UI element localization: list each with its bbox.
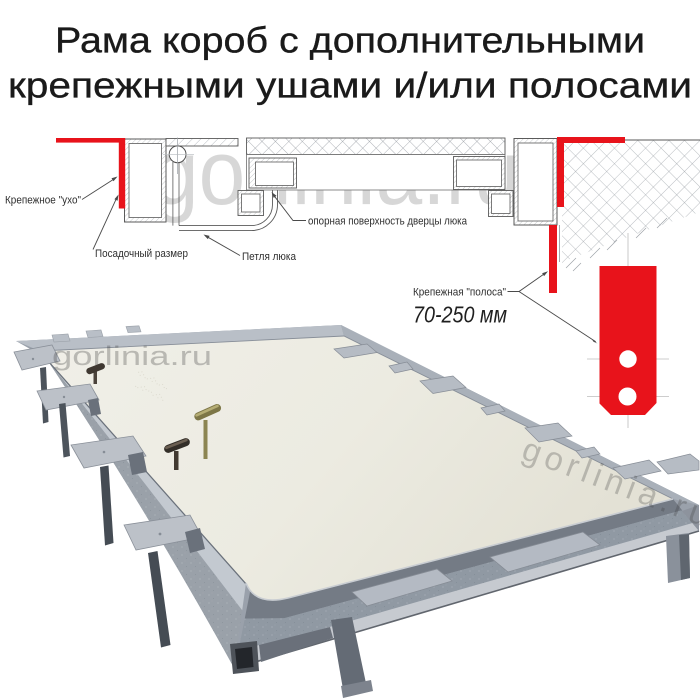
svg-text:Крепежное "ухо": Крепежное "ухо" [5, 195, 81, 207]
svg-text:70-250 мм: 70-250 мм [413, 302, 507, 328]
svg-text:крепежными ушами и/или полосам: крепежными ушами и/или полосами [8, 65, 692, 106]
svg-text:gorlinia.ru: gorlinia.ru [52, 341, 212, 371]
svg-text:Рама короб с дополнительными: Рама короб с дополнительными [55, 19, 645, 60]
svg-text:Петля люка: Петля люка [242, 251, 297, 263]
svg-text:Крепежная "полоса": Крепежная "полоса" [413, 287, 506, 299]
svg-text:Посадочный размер: Посадочный размер [95, 248, 188, 260]
svg-text:опорная поверхность дверцы люк: опорная поверхность дверцы люка [308, 216, 468, 228]
